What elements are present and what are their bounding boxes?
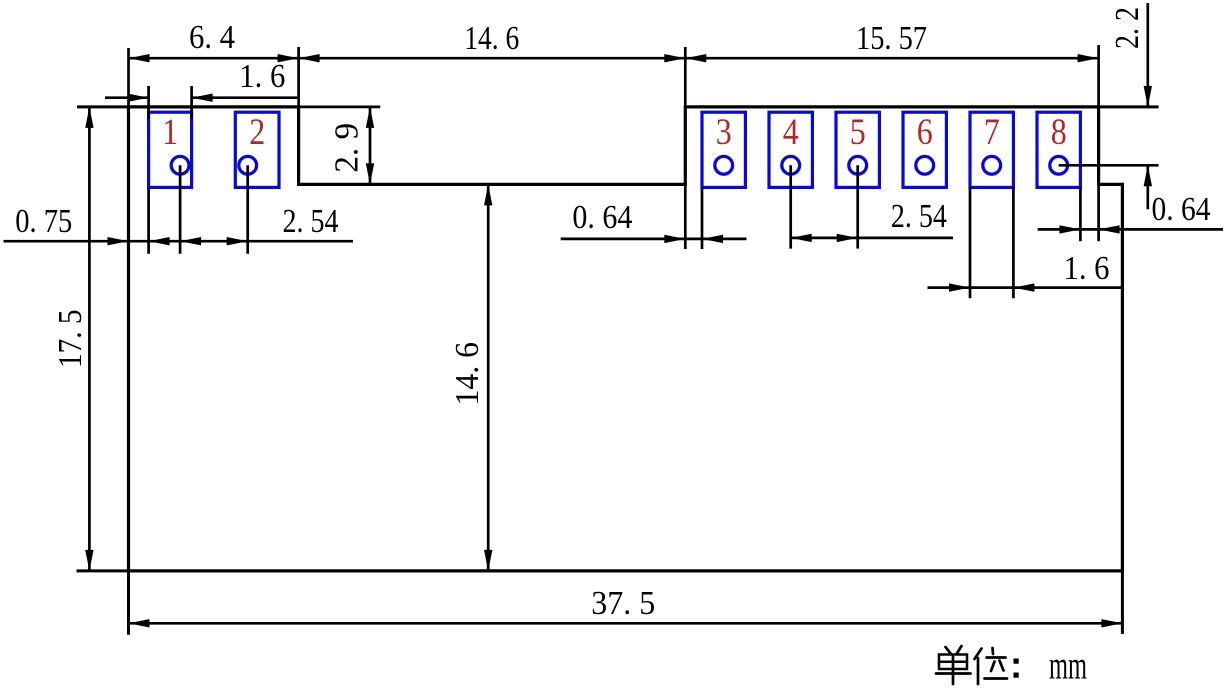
svg-text:17. 5: 17. 5 [52, 310, 89, 369]
svg-text:6. 4: 6. 4 [189, 19, 235, 56]
svg-text:3: 3 [716, 112, 732, 153]
svg-text:1. 6: 1. 6 [1064, 250, 1110, 287]
svg-text:2. 54: 2. 54 [283, 203, 339, 240]
svg-text:2: 2 [249, 112, 265, 153]
svg-text:1. 6: 1. 6 [239, 58, 285, 95]
svg-text:2. 9: 2. 9 [329, 123, 366, 173]
svg-text:5: 5 [850, 112, 866, 153]
svg-text:0. 64: 0. 64 [572, 199, 632, 236]
svg-text:1: 1 [162, 112, 178, 153]
svg-text:14. 6: 14. 6 [464, 20, 519, 57]
svg-text:15. 57: 15. 57 [856, 20, 927, 57]
svg-text:0. 75: 0. 75 [15, 203, 72, 240]
svg-text:0. 64: 0. 64 [1152, 191, 1211, 228]
svg-text:37. 5: 37. 5 [591, 585, 655, 622]
svg-text:14. 6: 14. 6 [449, 342, 486, 406]
svg-text:2. 2: 2. 2 [1109, 7, 1146, 49]
svg-text:4: 4 [783, 112, 799, 153]
svg-text:6: 6 [917, 112, 933, 153]
svg-text:7: 7 [984, 112, 1000, 153]
svg-text:mm: mm [1049, 642, 1087, 687]
svg-text:2. 54: 2. 54 [891, 198, 947, 235]
svg-text:8: 8 [1051, 112, 1067, 153]
